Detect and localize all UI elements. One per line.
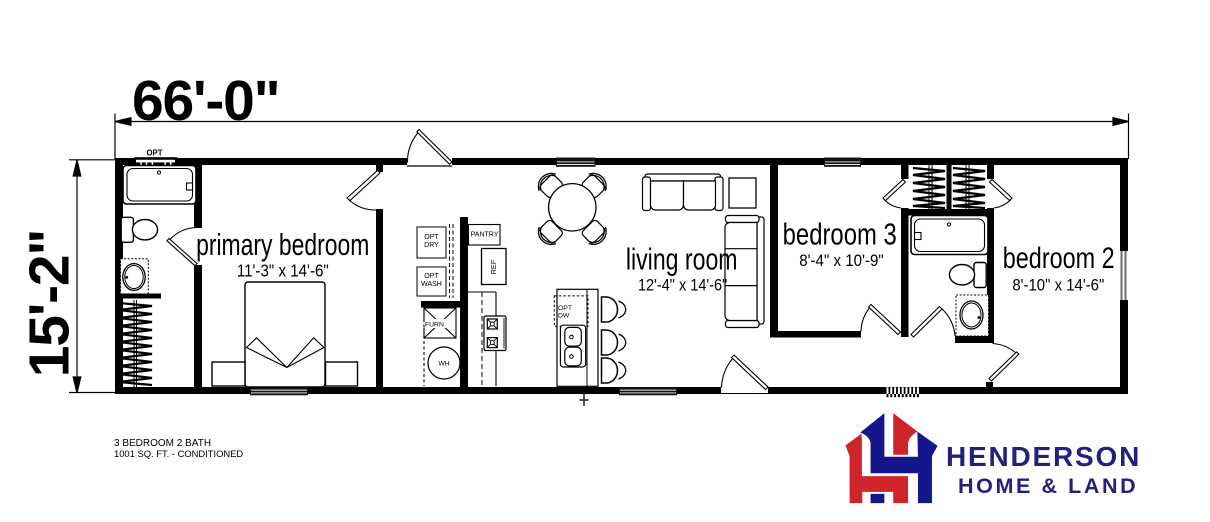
svg-text:12'-4" x 14'-6": 12'-4" x 14'-6" (638, 277, 727, 295)
svg-text:HENDERSON: HENDERSON (946, 441, 1141, 472)
svg-text:primary bedroom: primary bedroom (196, 226, 369, 261)
svg-text:bedroom 2: bedroom 2 (1003, 241, 1115, 274)
svg-text:8'-4" x 10'-9": 8'-4" x 10'-9" (799, 251, 884, 270)
svg-text:1001 SQ. FT. - CONDITIONED: 1001 SQ. FT. - CONDITIONED (114, 448, 243, 459)
svg-text:WH: WH (438, 361, 449, 368)
svg-text:REF: REF (489, 259, 498, 274)
svg-text:WASH: WASH (421, 281, 442, 288)
svg-text:FURN: FURN (425, 322, 444, 329)
svg-text:11'-3" x 14'-6": 11'-3" x 14'-6" (237, 262, 329, 281)
svg-text:OPT: OPT (424, 234, 439, 241)
svg-text:8'-10" x 14'-6": 8'-10" x 14'-6" (1012, 277, 1104, 295)
svg-text:OPT: OPT (558, 305, 572, 312)
svg-text:PANTRY: PANTRY (471, 232, 499, 239)
svg-text:OPT: OPT (424, 273, 439, 280)
svg-text:living room: living room (626, 242, 738, 276)
svg-text:bedroom 3: bedroom 3 (783, 216, 897, 251)
svg-text:HOME & LAND: HOME & LAND (958, 474, 1138, 498)
svg-text:15'-2": 15'-2" (18, 230, 82, 377)
svg-text:66'-0": 66'-0" (132, 69, 279, 133)
svg-text:DW: DW (558, 313, 570, 320)
svg-text:DRY: DRY (424, 242, 439, 249)
svg-text:OPT: OPT (146, 149, 162, 158)
